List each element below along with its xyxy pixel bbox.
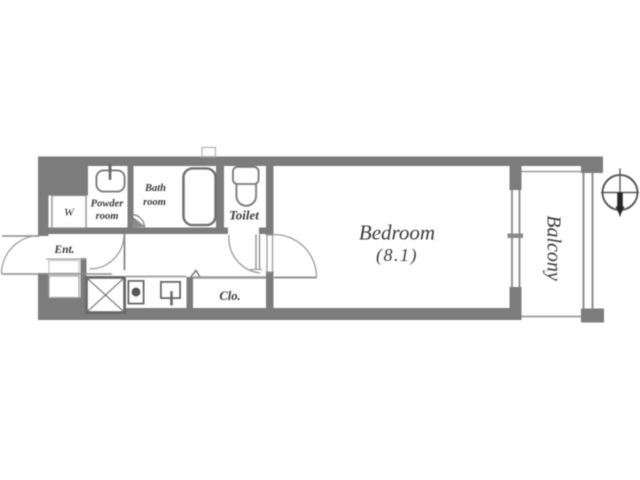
svg-text:W: W xyxy=(64,205,76,219)
svg-text:room: room xyxy=(96,211,119,222)
svg-text:Balcony: Balcony xyxy=(543,215,565,281)
svg-text:Toilet: Toilet xyxy=(229,208,259,223)
svg-text:Clo.: Clo. xyxy=(219,289,240,303)
svg-text:Bath: Bath xyxy=(144,183,166,194)
svg-text:(8.1): (8.1) xyxy=(376,245,418,266)
svg-text:room: room xyxy=(143,197,166,208)
svg-text:Ent.: Ent. xyxy=(53,244,74,256)
svg-text:Bedroom: Bedroom xyxy=(359,221,435,245)
svg-text:Powder: Powder xyxy=(91,199,125,210)
